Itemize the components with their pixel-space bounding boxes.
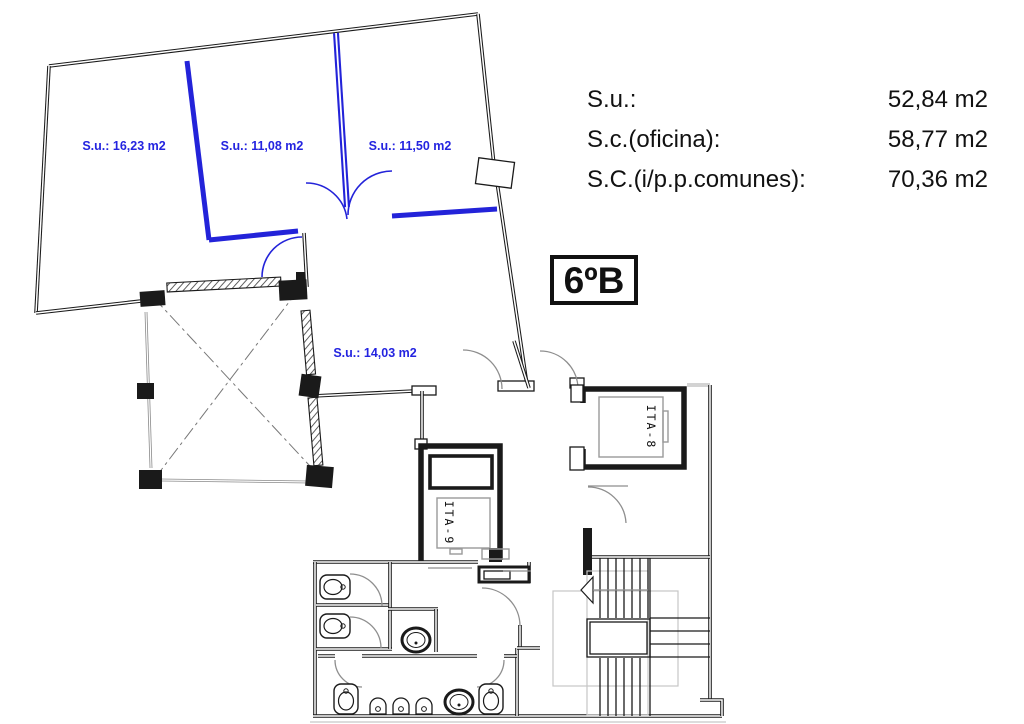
lightwell <box>137 277 334 489</box>
door-arc <box>477 660 504 687</box>
stall-door-arc <box>350 617 381 648</box>
bathrooms <box>310 549 726 722</box>
toilet-icon <box>334 684 358 714</box>
elevator-door-mark <box>663 411 668 442</box>
entrance-doors <box>412 341 584 449</box>
elevator-ita9: ITA-9 <box>421 446 502 568</box>
door-arc <box>588 487 626 523</box>
legend-value: 58,77 m2 <box>888 126 988 153</box>
room3-area-label: S.u.: 11,50 m2 <box>369 139 452 153</box>
double-door-arc-left <box>306 183 347 219</box>
legend: S.u.: 52,84 m2 S.c.(oficina): 58,77 m2 S… <box>587 86 988 193</box>
floor-plan-drawing: S.u.: 16,23 m2 S.u.: 11,08 m2 S.u.: 11,5… <box>0 0 1024 724</box>
stair-treads-right <box>650 618 710 657</box>
machine-room <box>430 456 492 488</box>
stall-door-arc <box>350 574 382 606</box>
legend-value: 52,84 m2 <box>888 86 988 113</box>
unit-label: 6ºB <box>564 260 625 301</box>
urinal-icon <box>370 698 386 714</box>
legend-label: S.C.(i/p.p.comunes): <box>587 166 806 193</box>
blue-partition-walls <box>187 33 497 281</box>
lightwell-diagonal <box>152 289 299 482</box>
unit-label-box: 6ºB <box>552 257 636 303</box>
door-jamb <box>412 386 436 395</box>
room1-area-label: S.u.: 16,23 m2 <box>82 139 165 153</box>
door-jamb <box>570 447 584 470</box>
cabinet <box>479 567 529 582</box>
elevator-ita9-label: ITA-9 <box>442 501 456 546</box>
lightwell-window-hatched <box>301 310 316 375</box>
elevator-ita8: ITA-8 <box>570 385 684 523</box>
stair-guide <box>587 571 648 715</box>
urinal-icon <box>416 698 432 714</box>
sink-icon <box>445 690 473 714</box>
legend-value: 70,36 m2 <box>888 166 988 193</box>
legend-label: S.c.(oficina): <box>587 126 720 153</box>
door-jamb <box>571 385 583 402</box>
hall-area-label: S.u.: 14,03 m2 <box>333 346 416 360</box>
legend-label: S.u.: <box>587 86 636 113</box>
staircase <box>553 385 722 716</box>
door-arc <box>335 660 362 687</box>
toilet-icon <box>320 575 350 599</box>
sink-icon <box>402 628 430 652</box>
toilet-icon <box>320 614 350 638</box>
double-door-arc-right <box>348 171 392 215</box>
toilet-icon <box>479 684 503 714</box>
window-block <box>475 158 514 188</box>
room2-area-label: S.u.: 11,08 m2 <box>221 139 304 153</box>
floor-plan-sheet: S.u.: 16,23 m2 S.u.: 11,08 m2 S.u.: 11,5… <box>0 0 1024 724</box>
office-outer-walls <box>36 14 527 396</box>
entrance-door-arc <box>463 350 502 389</box>
stair-landing <box>587 619 650 657</box>
lightwell-diagonal <box>153 297 322 479</box>
washroom-door-arc <box>482 588 520 626</box>
elevator-door-mark <box>450 549 462 554</box>
room1-door-arc <box>262 237 302 277</box>
lightwell-window-hatched <box>308 397 323 466</box>
lightwell-window-hatched <box>167 277 281 292</box>
urinal-icon <box>393 698 409 714</box>
elevator-ita8-label: ITA-8 <box>644 405 658 450</box>
stair-treads-lower <box>600 658 640 716</box>
